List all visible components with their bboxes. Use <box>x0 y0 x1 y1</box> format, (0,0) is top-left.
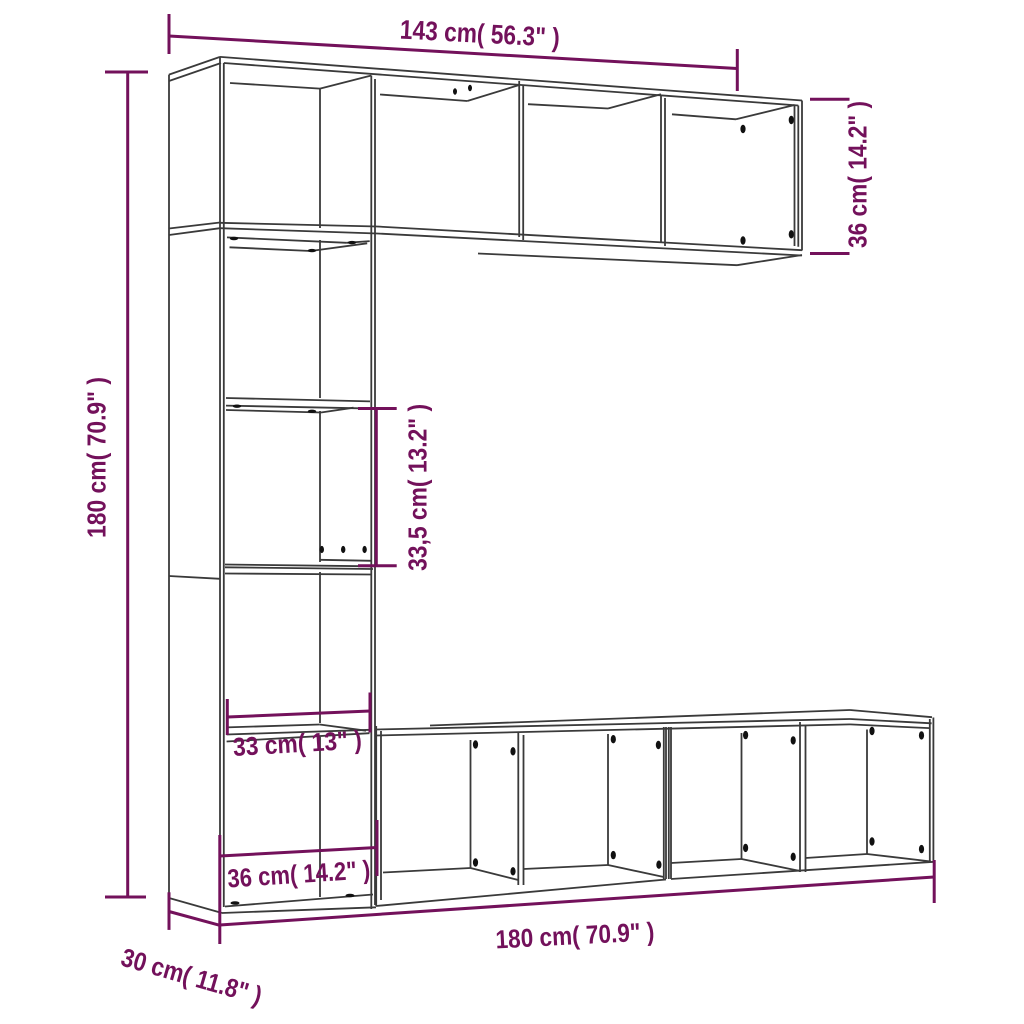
svg-text:33,5 cm( 13.2" ): 33,5 cm( 13.2" ) <box>403 404 433 571</box>
svg-text:36 cm( 14.2" ): 36 cm( 14.2" ) <box>843 101 873 248</box>
svg-text:180 cm( 70.9" ): 180 cm( 70.9" ) <box>82 377 112 538</box>
